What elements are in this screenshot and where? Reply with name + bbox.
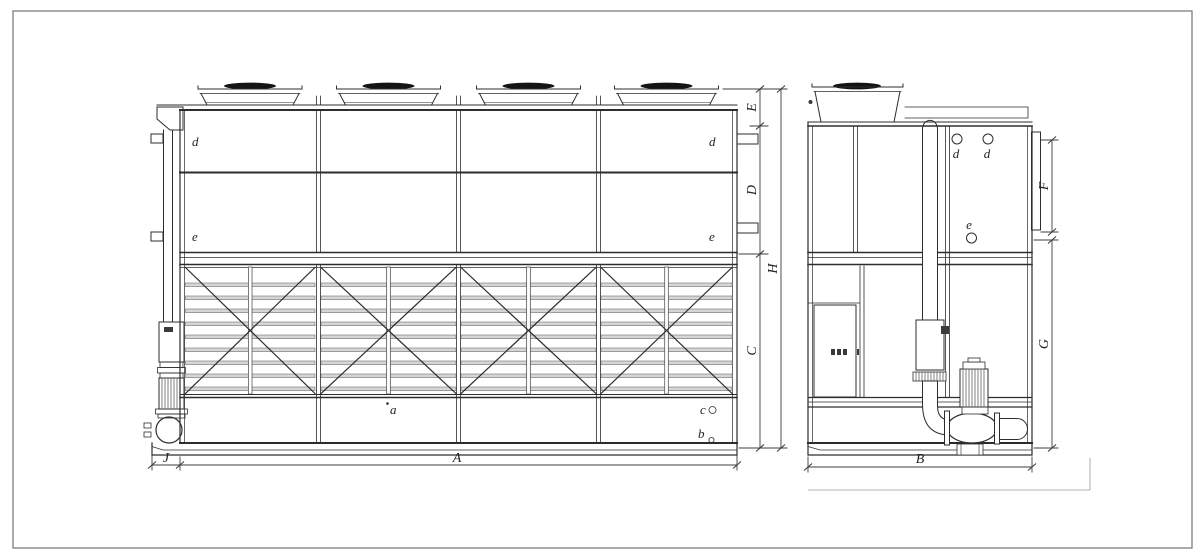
- louver-bay: [185, 267, 314, 394]
- basin-section: a c b: [152, 398, 737, 456]
- front-dimensions: E D C H J A: [148, 86, 787, 471]
- louver-section: [180, 265, 737, 398]
- dim-label-G: G: [1037, 339, 1052, 349]
- side-bracket: [1032, 132, 1041, 230]
- fan-unit: [477, 83, 581, 105]
- part-label-d: d: [984, 146, 991, 161]
- front-view: a c b d e d e: [144, 83, 758, 455]
- part-label-e: e: [966, 217, 972, 232]
- port-marker: [967, 233, 977, 243]
- part-label-e: e: [192, 229, 198, 244]
- fan-unit: [337, 83, 441, 105]
- pipe-bracket: [151, 134, 163, 143]
- dim-label-B: B: [916, 452, 925, 467]
- pump-volute: [947, 413, 997, 443]
- side-outlet-stub: [737, 223, 758, 233]
- dim-label-E: E: [745, 103, 760, 113]
- port-marker: [709, 407, 716, 414]
- dim-label-A: A: [452, 451, 462, 466]
- marker-dot: [386, 402, 389, 405]
- part-label-b: b: [698, 426, 705, 441]
- door-handle: [857, 349, 859, 355]
- side-view: d d e: [808, 83, 1090, 490]
- pipe-device: [916, 320, 944, 370]
- side-riser-pipe: [913, 120, 950, 435]
- part-label-e: e: [709, 229, 715, 244]
- port-marker: [709, 437, 714, 442]
- inlet-flange: [945, 411, 950, 445]
- dim-label-J: J: [163, 451, 170, 466]
- pipe-bracket: [151, 232, 163, 241]
- fan-row: [198, 83, 719, 105]
- bolt-mark: [809, 100, 813, 104]
- port-marker: [952, 134, 962, 144]
- part-label-d: d: [709, 134, 716, 149]
- dim-label-C: C: [745, 346, 760, 356]
- louver-bay: [601, 267, 732, 394]
- technical-drawing-svg: a c b d e d e: [0, 0, 1200, 559]
- part-label-c: c: [700, 402, 706, 417]
- dim-label-D: D: [745, 185, 760, 196]
- drawing-canvas: a c b d e d e: [0, 0, 1200, 559]
- outlet-flange: [995, 413, 1000, 444]
- side-outlet-stub: [737, 134, 758, 144]
- discharge-pipe: [1000, 419, 1028, 440]
- part-label-d: d: [192, 134, 199, 149]
- riser-pipe-and-pump: [144, 107, 188, 443]
- pump-volute: [156, 417, 182, 443]
- part-label-d: d: [953, 146, 960, 161]
- front-casing: [157, 105, 737, 443]
- dim-label-F: F: [1037, 181, 1052, 191]
- fan-unit: [615, 83, 719, 105]
- dim-label-H: H: [766, 263, 781, 275]
- part-label-a: a: [390, 402, 397, 417]
- louver-bay: [321, 267, 456, 394]
- louver-bay: [461, 267, 596, 394]
- side-fan: [809, 83, 904, 122]
- fan-unit: [198, 83, 302, 105]
- auxiliary-line: [808, 458, 1090, 490]
- side-port-markers: d d e: [952, 134, 993, 243]
- port-marker: [983, 134, 993, 144]
